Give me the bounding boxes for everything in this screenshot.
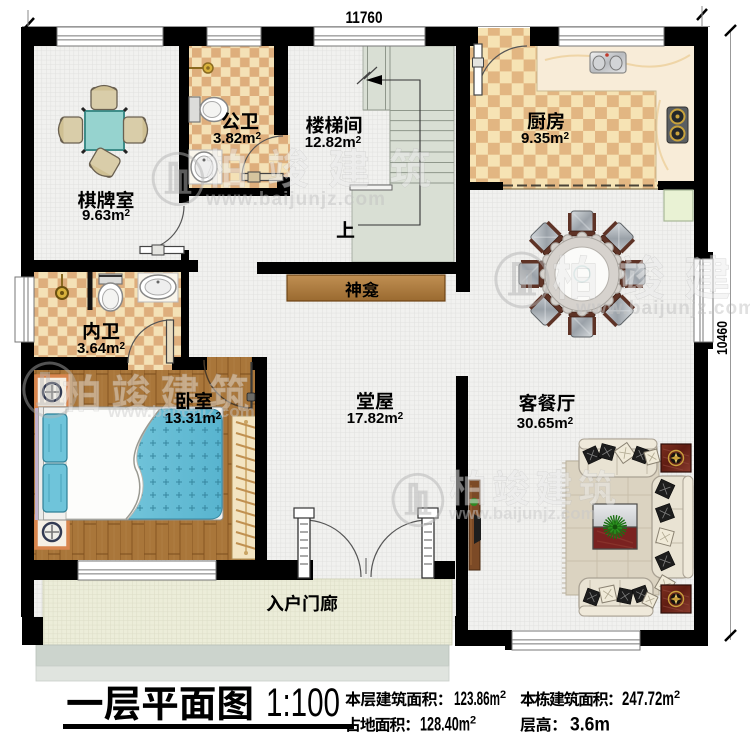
svg-text:www.baijunjz.com: www.baijunjz.com — [205, 189, 386, 210]
svg-text:247.72m2: 247.72m2 — [622, 689, 680, 710]
svg-text:9.35m2: 9.35m2 — [521, 130, 570, 147]
svg-text:30.65m2: 30.65m2 — [517, 415, 574, 432]
svg-text:9.63m2: 9.63m2 — [82, 207, 131, 224]
svg-text:www.baijunjz.com: www.baijunjz.com — [448, 504, 596, 523]
svg-text:www.baijunjz.com: www.baijunjz.com — [575, 298, 750, 319]
svg-text:3.6m: 3.6m — [570, 715, 610, 736]
svg-text:1:100: 1:100 — [266, 681, 340, 725]
svg-text:11760: 11760 — [346, 8, 383, 27]
svg-text:13.31m2: 13.31m2 — [165, 410, 222, 427]
svg-text:123.86m2: 123.86m2 — [454, 689, 506, 710]
svg-text:10460: 10460 — [714, 321, 731, 355]
svg-text:17.82m2: 17.82m2 — [347, 410, 404, 427]
svg-text:3.64m2: 3.64m2 — [77, 340, 126, 357]
svg-text:128.40m2: 128.40m2 — [420, 715, 476, 736]
svg-text:12.82m2: 12.82m2 — [305, 134, 362, 151]
svg-text:3.82m2: 3.82m2 — [213, 130, 262, 147]
